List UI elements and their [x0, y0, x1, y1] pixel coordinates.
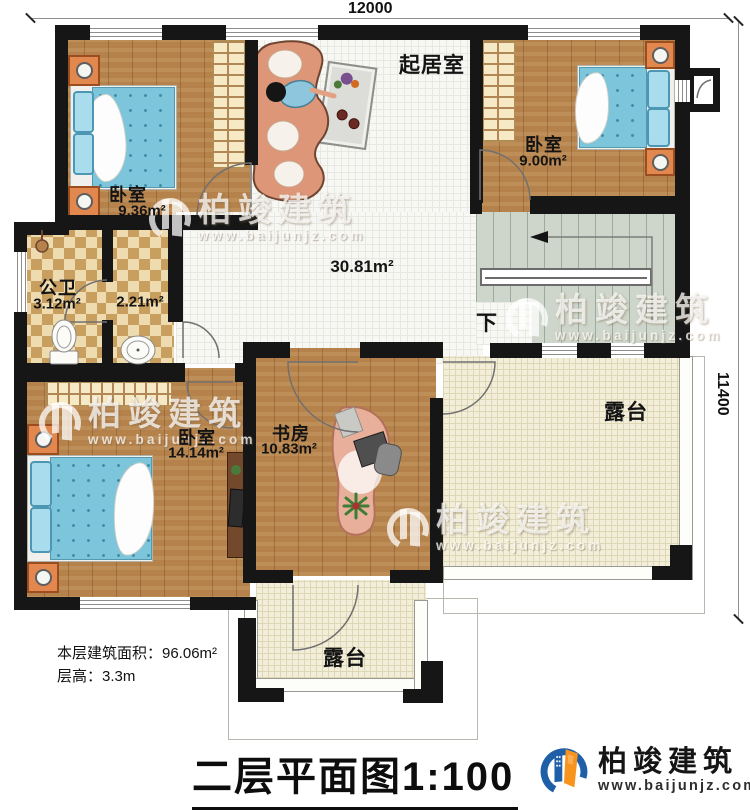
- company-name: 柏竣建筑: [598, 747, 750, 778]
- wall: [430, 398, 443, 570]
- company-logo-icon: [538, 742, 590, 798]
- wall: [245, 25, 258, 165]
- flower-bouquet: [351, 79, 360, 88]
- area-label-bedroom-top-right: 9.00m²: [519, 153, 567, 170]
- floor-study: [250, 348, 436, 576]
- area-label-washroom: 2.21m²: [116, 294, 164, 311]
- window: [675, 80, 690, 102]
- company-website: www.baijunjz.com: [598, 778, 750, 794]
- nightstand: [27, 562, 59, 593]
- dimension-top-label: 12000: [348, 0, 393, 18]
- dimension-line-top: [30, 18, 730, 19]
- wall: [102, 230, 113, 282]
- room-label-living-room: 起居室: [399, 49, 465, 79]
- area-label-study: 10.83m²: [261, 441, 317, 458]
- wall: [490, 343, 542, 358]
- floor-terrace-right: [443, 356, 679, 568]
- terrace-parapet: [679, 356, 693, 570]
- pillow: [73, 133, 94, 175]
- stairs-down-label: 下: [476, 307, 498, 337]
- pillow: [73, 91, 94, 133]
- lamp: [35, 431, 52, 448]
- wall: [55, 25, 68, 235]
- wardrobe: [483, 40, 515, 142]
- wall: [530, 196, 690, 214]
- window: [80, 597, 190, 610]
- wall: [318, 25, 528, 40]
- lamp: [35, 569, 52, 586]
- bay-window: [694, 76, 713, 104]
- lamp: [76, 62, 93, 79]
- floor-plan-canvas: 12000 11400: [0, 0, 750, 810]
- window: [90, 25, 162, 40]
- wall: [577, 343, 611, 358]
- wall: [243, 570, 293, 583]
- wall: [470, 25, 483, 203]
- nightstand: [645, 41, 675, 69]
- wall: [470, 196, 482, 214]
- nightstand: [68, 186, 100, 217]
- wall: [430, 342, 443, 358]
- wall: [102, 320, 113, 367]
- wall: [168, 222, 183, 322]
- window: [611, 343, 644, 358]
- window: [528, 25, 640, 40]
- wall: [14, 363, 185, 382]
- pillow: [30, 461, 52, 507]
- wardrobe: [45, 382, 172, 406]
- nightstand: [645, 148, 675, 176]
- lamp: [76, 193, 93, 210]
- window: [542, 343, 577, 358]
- drawing-title: 二层平面图1:100: [192, 744, 518, 810]
- room-label-terrace-right: 露台: [604, 396, 648, 426]
- flower-bouquet: [333, 80, 342, 89]
- window: [14, 252, 27, 312]
- pillow: [30, 507, 52, 553]
- wall: [243, 342, 290, 358]
- area-label-bathroom: 3.12m²: [33, 296, 81, 313]
- wall: [162, 25, 226, 40]
- area-label-living-room: 30.81m²: [330, 257, 393, 277]
- wall: [644, 343, 690, 358]
- area-label-bedroom-bottom-left: 14.14m²: [168, 445, 224, 462]
- pillow: [647, 70, 670, 109]
- cup: [348, 117, 360, 129]
- room-label-terrace-bottom: 露台: [323, 642, 367, 672]
- cup: [336, 109, 348, 121]
- dimension-right-label: 11400: [713, 372, 731, 416]
- wall-corner: [670, 545, 692, 568]
- lamp: [652, 154, 669, 171]
- company-logo: 柏竣建筑 www.baijunjz.com: [538, 742, 750, 798]
- dimension-line-right: [738, 22, 739, 620]
- nightstand: [68, 55, 100, 86]
- floor-height-note: 层高：3.3m: [57, 665, 135, 686]
- stair-handrail: [480, 268, 652, 286]
- area-label-bedroom-top-left: 9.36m²: [118, 203, 166, 220]
- nightstand: [27, 424, 59, 455]
- wall: [390, 570, 443, 583]
- floor-area-note: 本层建筑面积：96.06m²: [57, 642, 217, 663]
- wall: [243, 342, 256, 583]
- pillow: [647, 108, 670, 147]
- wall-corner: [403, 689, 443, 703]
- window: [226, 25, 318, 40]
- wall-corner: [238, 688, 284, 702]
- lamp: [652, 47, 669, 64]
- wardrobe: [213, 40, 245, 168]
- wall-corner: [652, 566, 692, 580]
